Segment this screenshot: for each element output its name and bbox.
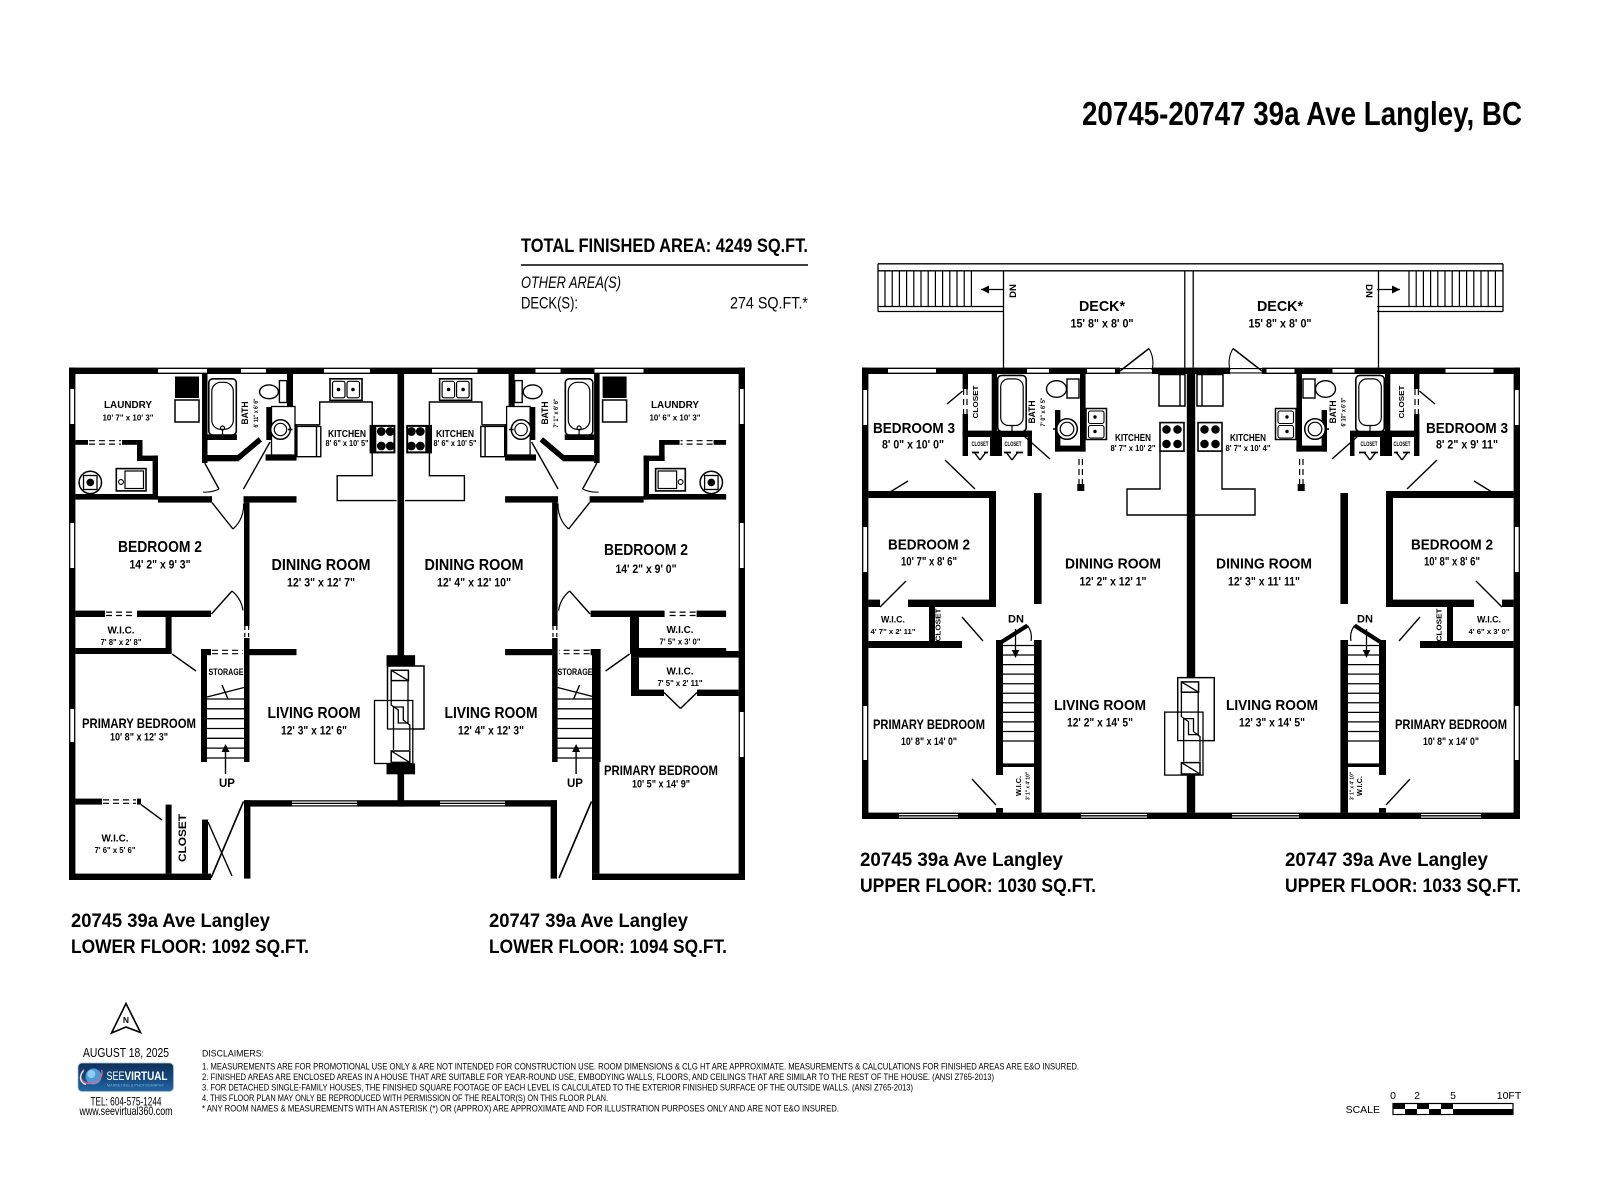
svg-text:DECK*: DECK* (1257, 298, 1303, 315)
svg-text:SCALE: SCALE (1346, 1104, 1380, 1116)
svg-text:UPPER FLOOR: 1030 SQ.FT.: UPPER FLOOR: 1030 SQ.FT. (860, 876, 1096, 897)
svg-text:12' 3" x 12' 7": 12' 3" x 12' 7" (287, 576, 355, 590)
svg-text:CLOSET: CLOSET (1005, 441, 1022, 448)
svg-text:8' 7" x 10' 4": 8' 7" x 10' 4" (1226, 444, 1271, 453)
svg-text:3' 1" x 4' 10": 3' 1" x 4' 10" (1350, 772, 1356, 800)
svg-text:KITCHEN: KITCHEN (1115, 433, 1151, 444)
svg-text:20745 39a Ave Langley: 20745 39a Ave Langley (71, 911, 270, 932)
svg-text:10' 8" x 14' 0": 10' 8" x 14' 0" (901, 736, 957, 748)
svg-text:MARKETING & PHOTOGRAPHY: MARKETING & PHOTOGRAPHY (107, 1084, 165, 1088)
svg-text:W.I.C.: W.I.C. (1477, 615, 1501, 626)
svg-text:10' 7" x 8' 6": 10' 7" x 8' 6" (901, 555, 957, 569)
svg-text:3. FOR DETACHED SINGLE-FAMILY: 3. FOR DETACHED SINGLE-FAMILY HOUSES, TH… (202, 1083, 913, 1093)
svg-text:DINING ROOM: DINING ROOM (425, 557, 524, 574)
svg-text:CLOSET: CLOSET (177, 814, 189, 862)
svg-text:12' 4" x 12' 3": 12' 4" x 12' 3" (458, 724, 524, 738)
svg-text:15' 8" x 8' 0": 15' 8" x 8' 0" (1071, 317, 1134, 331)
svg-text:10' 6" x 10' 3": 10' 6" x 10' 3" (650, 414, 701, 423)
svg-text:BATH: BATH (240, 401, 251, 424)
svg-text:12' 4" x 12' 10": 12' 4" x 12' 10" (437, 576, 511, 590)
svg-text:DN: DN (1008, 284, 1019, 298)
svg-text:4. THIS FLOOR PLAN MAY ONLY BE: 4. THIS FLOOR PLAN MAY ONLY BE REPRODUCE… (202, 1093, 608, 1103)
svg-text:CLOSET: CLOSET (1361, 441, 1378, 448)
svg-text:7' 6" x 5' 6": 7' 6" x 5' 6" (95, 846, 136, 855)
svg-text:BEDROOM 2: BEDROOM 2 (118, 539, 202, 556)
svg-text:CLOSET: CLOSET (934, 608, 943, 641)
svg-text:DISCLAIMERS:: DISCLAIMERS: (202, 1049, 264, 1059)
svg-text:6' 10" x 6' 5": 6' 10" x 6' 5" (1341, 398, 1348, 427)
svg-text:DECK(S):: DECK(S): (521, 295, 578, 313)
svg-text:W.I.C.: W.I.C. (1357, 776, 1364, 796)
svg-text:DINING ROOM: DINING ROOM (1065, 556, 1161, 573)
svg-text:TOTAL FINISHED AREA: 4249 SQ.: TOTAL FINISHED AREA: 4249 SQ.FT. (521, 235, 808, 257)
svg-text:3' 1" x 4' 10": 3' 1" x 4' 10" (1026, 772, 1032, 800)
svg-text:BEDROOM 2: BEDROOM 2 (888, 537, 970, 554)
svg-text:DECK*: DECK* (1079, 298, 1125, 315)
svg-text:PRIMARY BEDROOM: PRIMARY BEDROOM (1395, 717, 1507, 732)
svg-text:20747 39a Ave Langley: 20747 39a Ave Langley (1285, 850, 1488, 871)
svg-text:20745-20747 39a Ave Langley, B: 20745-20747 39a Ave Langley, BC (1082, 96, 1522, 133)
svg-text:CLOSET: CLOSET (1397, 385, 1406, 418)
svg-text:BATH: BATH (1027, 400, 1038, 423)
svg-text:DN: DN (1357, 614, 1373, 626)
svg-text:4' 6" x 3' 0": 4' 6" x 3' 0" (1469, 627, 1510, 636)
svg-text:12' 3" x 11' 11": 12' 3" x 11' 11" (1228, 575, 1300, 589)
svg-text:W.I.C.: W.I.C. (881, 615, 905, 626)
svg-text:DINING ROOM: DINING ROOM (272, 557, 371, 574)
svg-text:UPPER FLOOR: 1033 SQ.FT.: UPPER FLOOR: 1033 SQ.FT. (1285, 876, 1521, 897)
svg-text:W.I.C.: W.I.C. (667, 625, 694, 636)
svg-text:LIVING ROOM: LIVING ROOM (268, 705, 361, 722)
svg-text:LOWER FLOOR: 1094 SQ.FT.: LOWER FLOOR: 1094 SQ.FT. (489, 937, 727, 958)
svg-text:10' 7" x 10' 3": 10' 7" x 10' 3" (103, 414, 154, 423)
svg-text:7' 5" x 2' 11": 7' 5" x 2' 11" (658, 679, 703, 688)
svg-text:14' 2" x 9' 3": 14' 2" x 9' 3" (130, 558, 191, 572)
svg-text:8' 6" x 10' 5": 8' 6" x 10' 5" (326, 439, 369, 448)
svg-text:12' 2" x 14' 5": 12' 2" x 14' 5" (1067, 716, 1133, 730)
svg-text:12' 3" x 12' 6": 12' 3" x 12' 6" (281, 724, 347, 738)
svg-text:W.I.C.: W.I.C. (102, 834, 129, 845)
svg-text:8' 0" x 10' 0": 8' 0" x 10' 0" (882, 438, 944, 452)
svg-text:W.I.C.: W.I.C. (667, 667, 694, 678)
svg-text:0: 0 (1390, 1090, 1396, 1102)
svg-text:UP: UP (567, 778, 583, 790)
svg-text:20747 39a Ave Langley: 20747 39a Ave Langley (489, 911, 688, 932)
svg-text:10' 8" x 14' 0": 10' 8" x 14' 0" (1423, 736, 1479, 748)
svg-text:1. MEASUREMENTS ARE FOR PROMOT: 1. MEASUREMENTS ARE FOR PROMOTIONAL USE … (202, 1062, 1079, 1072)
svg-text:5: 5 (1450, 1090, 1456, 1102)
svg-text:www.seevirtual360.com: www.seevirtual360.com (79, 1104, 173, 1118)
svg-text:DN: DN (1363, 284, 1374, 298)
svg-text:15' 8" x 8' 0": 15' 8" x 8' 0" (1249, 317, 1312, 331)
svg-text:BEDROOM 2: BEDROOM 2 (1411, 537, 1493, 554)
svg-text:14' 2" x 9' 0": 14' 2" x 9' 0" (616, 562, 677, 576)
svg-text:20745 39a Ave Langley: 20745 39a Ave Langley (860, 850, 1063, 871)
svg-text:DN: DN (1008, 614, 1024, 626)
svg-text:BEDROOM 3: BEDROOM 3 (1426, 420, 1508, 437)
svg-text:8' 7" x 10' 2": 8' 7" x 10' 2" (1111, 444, 1156, 453)
svg-text:BEDROOM 3: BEDROOM 3 (873, 420, 955, 437)
svg-text:W.I.C.: W.I.C. (108, 626, 135, 637)
svg-text:STORAGE: STORAGE (558, 667, 593, 677)
svg-text:DINING ROOM: DINING ROOM (1216, 556, 1312, 573)
svg-text:10' 5" x 14' 9": 10' 5" x 14' 9" (632, 779, 690, 791)
svg-text:* ANY ROOM NAMES & MEASUREMENT: * ANY ROOM NAMES & MEASUREMENTS WITH AN … (202, 1104, 839, 1114)
svg-text:4' 7" x 2' 11": 4' 7" x 2' 11" (871, 627, 916, 636)
svg-text:PRIMARY BEDROOM: PRIMARY BEDROOM (604, 763, 718, 778)
svg-text:CLOSET: CLOSET (972, 441, 989, 448)
svg-text:274 SQ.FT.*: 274 SQ.FT.* (730, 295, 808, 313)
svg-text:6' 11" x 6' 6": 6' 11" x 6' 6" (253, 399, 260, 428)
svg-text:PRIMARY BEDROOM: PRIMARY BEDROOM (82, 716, 196, 731)
svg-text:BATH: BATH (1328, 400, 1339, 423)
svg-text:8' 6" x 10' 5": 8' 6" x 10' 5" (434, 439, 477, 448)
svg-text:LIVING ROOM: LIVING ROOM (445, 705, 538, 722)
svg-text:W.I.C.: W.I.C. (1016, 776, 1023, 796)
svg-text:AUGUST 18, 2025: AUGUST 18, 2025 (83, 1046, 169, 1060)
svg-text:10' 8" x 8' 6": 10' 8" x 8' 6" (1424, 555, 1480, 569)
svg-text:LOWER FLOOR: 1092 SQ.FT.: LOWER FLOOR: 1092 SQ.FT. (71, 937, 309, 958)
svg-text:BATH: BATH (540, 401, 551, 424)
svg-text:N: N (123, 1015, 129, 1025)
svg-text:UP: UP (219, 778, 235, 790)
svg-text:CLOSET: CLOSET (1394, 441, 1411, 448)
svg-text:8' 2" x 9' 11": 8' 2" x 9' 11" (1436, 438, 1498, 452)
svg-text:KITCHEN: KITCHEN (1230, 433, 1266, 444)
svg-text:BEDROOM 2: BEDROOM 2 (604, 542, 688, 559)
svg-text:7' 8" x 2' 8": 7' 8" x 2' 8" (101, 638, 142, 647)
svg-text:10FT: 10FT (1497, 1090, 1522, 1102)
svg-text:SEE: SEE (107, 1069, 125, 1083)
svg-text:7' 0" x 6' 5": 7' 0" x 6' 5" (1040, 398, 1047, 427)
svg-text:2. FINISHED AREAS ARE ENCLOSED: 2. FINISHED AREAS ARE ENCLOSED AREAS IN … (202, 1072, 994, 1082)
svg-text:2: 2 (1414, 1090, 1420, 1102)
svg-text:7' 1" x 6' 6": 7' 1" x 6' 6" (553, 399, 560, 428)
svg-text:LAUNDRY: LAUNDRY (651, 400, 699, 411)
svg-text:10' 8" x 12' 3": 10' 8" x 12' 3" (110, 732, 168, 744)
svg-text:12' 3" x 14' 5": 12' 3" x 14' 5" (1239, 716, 1305, 730)
svg-text:CLOSET: CLOSET (1435, 608, 1444, 641)
svg-text:12' 2" x 12' 1": 12' 2" x 12' 1" (1080, 575, 1147, 589)
svg-text:OTHER AREA(S): OTHER AREA(S) (521, 274, 621, 292)
svg-text:PRIMARY BEDROOM: PRIMARY BEDROOM (873, 717, 985, 732)
svg-text:STORAGE: STORAGE (209, 667, 244, 677)
svg-text:7' 5" x 3' 0": 7' 5" x 3' 0" (660, 638, 701, 647)
svg-text:LIVING ROOM: LIVING ROOM (1054, 697, 1146, 714)
svg-text:VIRTUAL: VIRTUAL (125, 1069, 168, 1083)
svg-text:CLOSET: CLOSET (971, 385, 980, 418)
svg-text:LIVING ROOM: LIVING ROOM (1226, 697, 1318, 714)
svg-text:LAUNDRY: LAUNDRY (104, 400, 152, 411)
